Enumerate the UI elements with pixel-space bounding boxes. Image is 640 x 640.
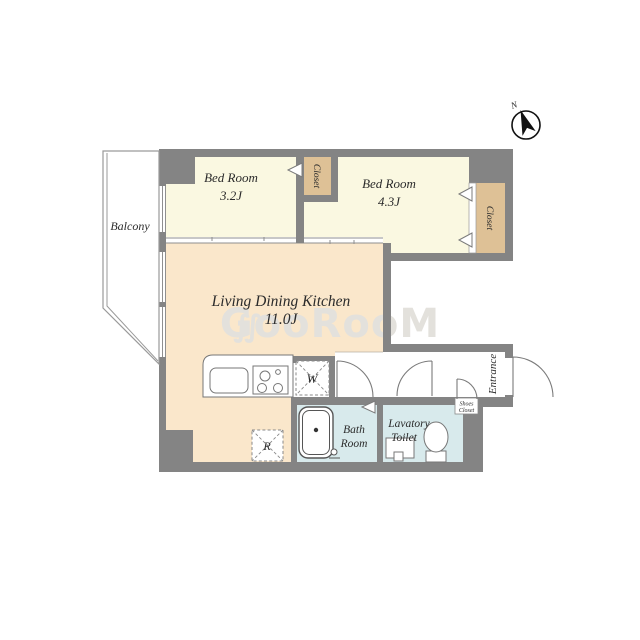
fridge-label: R [262,439,271,453]
closet2-label: Closet [484,206,494,231]
compass-north-label: N [509,99,520,111]
sliding-doors [166,237,383,244]
shoes-closet-label-line2: Closet [459,408,475,414]
entrance-door-arc [513,357,553,397]
shoes-closet-label-line1: Shoes [460,402,475,408]
bedroom2-label: Bed Room [362,176,416,191]
bath-label-line2: Room [340,438,368,450]
balcony [103,151,159,364]
floor-plan: ∬ GooRooM [0,0,640,640]
balcony-label: Balcony [110,219,150,233]
kitchen-sink-icon [210,368,248,393]
hall-alcove [335,352,383,397]
lavatory-label-line1: Lavatory [387,418,430,430]
bedroom1-label: Bed Room [204,170,258,185]
bath-label-line1: Bath [343,424,365,436]
compass-icon: N [509,99,540,139]
lavatory-label-line2: Toilet [391,432,418,444]
ldk-label: Living Dining Kitchen [211,293,351,310]
entrance-label: Entrance [487,354,499,395]
bedroom1-size: 3.2J [219,188,243,203]
washer-label: W [307,371,319,386]
floor-plan-page: ∬ GooRooM [0,0,640,640]
ldk-size: 11.0J [265,311,299,328]
kitchen-counter [203,355,293,397]
bedroom2-size: 4.3J [378,194,401,209]
closet1-label: Closet [311,164,321,189]
